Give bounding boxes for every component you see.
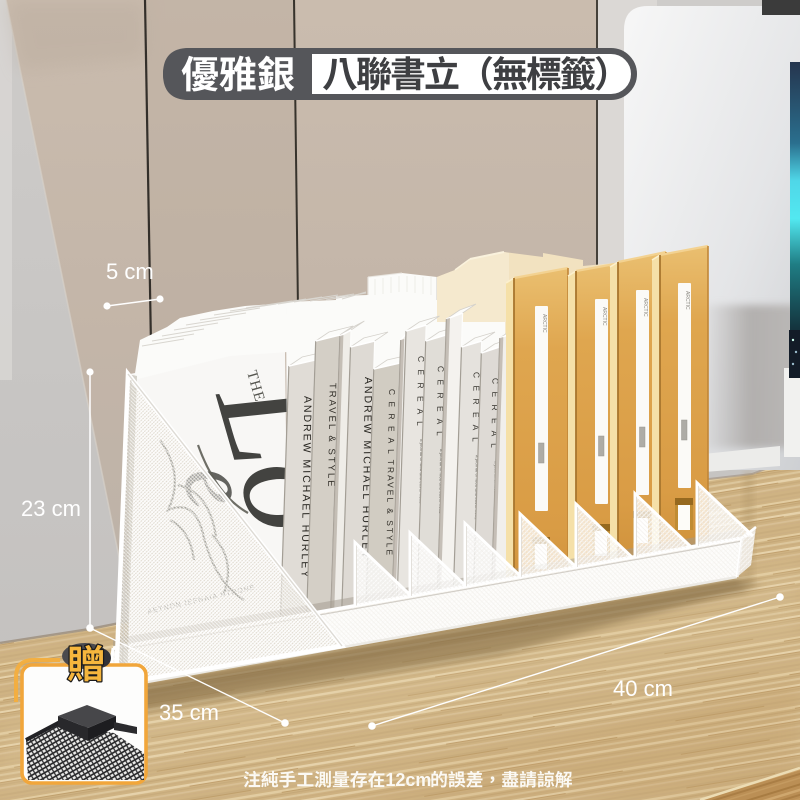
svg-text:35 cm: 35 cm [159, 700, 219, 725]
svg-text:5 cm: 5 cm [106, 259, 154, 284]
svg-text:23 cm: 23 cm [21, 496, 81, 521]
svg-text:ARCTIC: ARCTIC [642, 298, 648, 317]
svg-text:ARCTIC: ARCTIC [684, 291, 690, 310]
svg-text:12cm: 12cm [385, 770, 431, 790]
svg-text:ARCTIC: ARCTIC [541, 314, 547, 333]
svg-text:ARCTIC: ARCTIC [601, 307, 607, 326]
svg-text:40 cm: 40 cm [613, 676, 673, 701]
